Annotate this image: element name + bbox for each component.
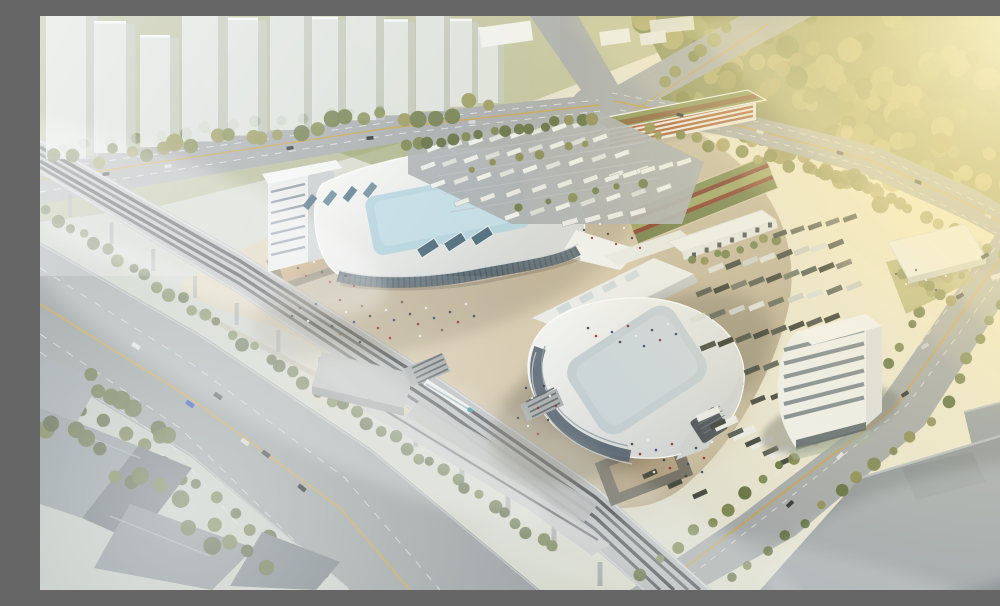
aerial-rendering <box>40 16 1000 590</box>
scene-canvas <box>40 16 1000 590</box>
